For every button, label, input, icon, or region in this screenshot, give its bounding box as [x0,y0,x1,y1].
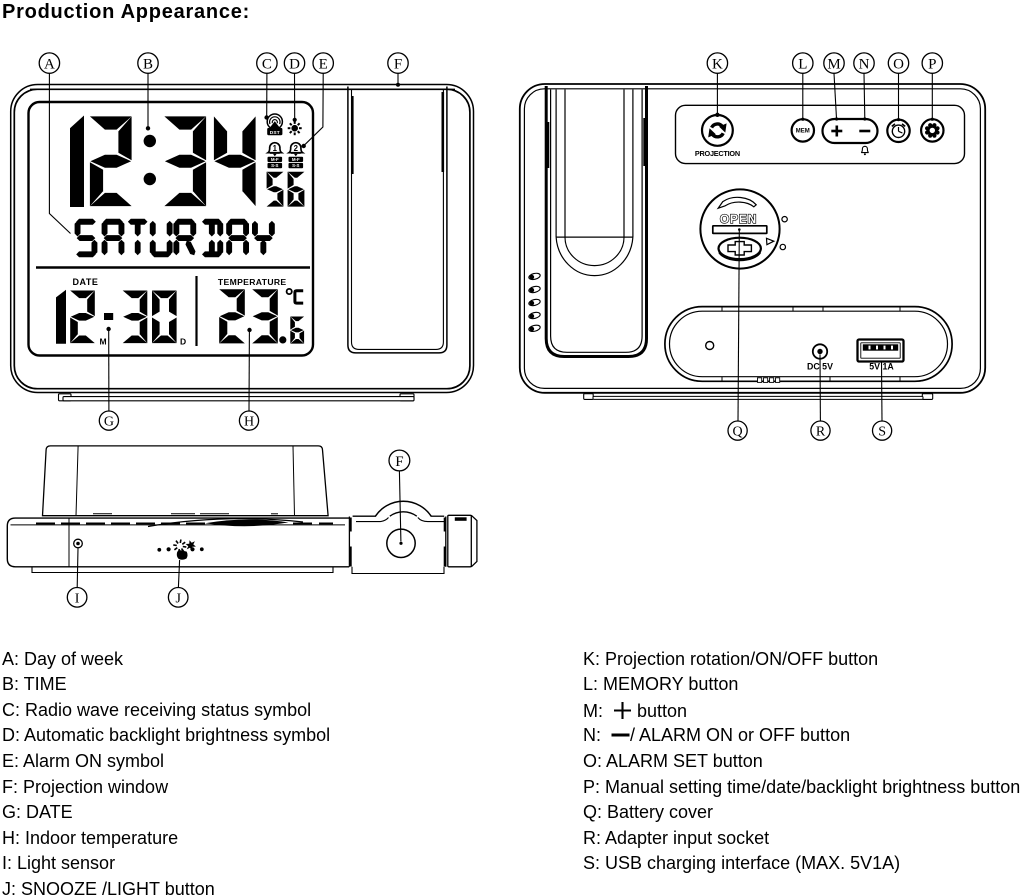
svg-text:P: P [928,57,936,73]
svg-text:DST: DST [270,130,280,136]
svg-text:D: D [180,337,186,347]
svg-text:2: 2 [294,144,299,153]
svg-text:OPEN: OPEN [720,212,757,226]
svg-text:J: J [175,591,181,606]
svg-text:E: E [319,57,328,73]
svg-text:C: C [262,57,272,73]
svg-text:PROJECTION: PROJECTION [695,149,740,158]
svg-text:Q: Q [733,425,743,440]
svg-text:M: M [827,57,840,73]
svg-text:S-S: S-S [271,163,278,168]
svg-text:N: N [859,57,870,73]
svg-text:R: R [816,425,826,440]
svg-text:K: K [712,57,723,73]
svg-text:L: L [798,57,807,73]
svg-text:M-F: M-F [292,157,300,162]
svg-text:D: D [289,57,300,73]
svg-text:MEM: MEM [796,129,810,135]
svg-text:B: B [143,57,153,73]
svg-text:A: A [44,57,55,73]
svg-text:I: I [75,591,80,606]
svg-text:M-F: M-F [271,157,279,162]
svg-text:TEMPERATURE: TEMPERATURE [218,277,287,287]
svg-text:M: M [100,337,107,347]
svg-text:O: O [893,57,904,73]
svg-text:G: G [104,415,114,430]
svg-text:S: S [878,425,886,440]
svg-text:F: F [395,454,403,470]
svg-text:1: 1 [273,144,278,153]
svg-text:F: F [394,57,402,73]
svg-text:S-S: S-S [292,163,299,168]
svg-text:H: H [244,415,254,430]
svg-text:DATE: DATE [73,277,99,287]
